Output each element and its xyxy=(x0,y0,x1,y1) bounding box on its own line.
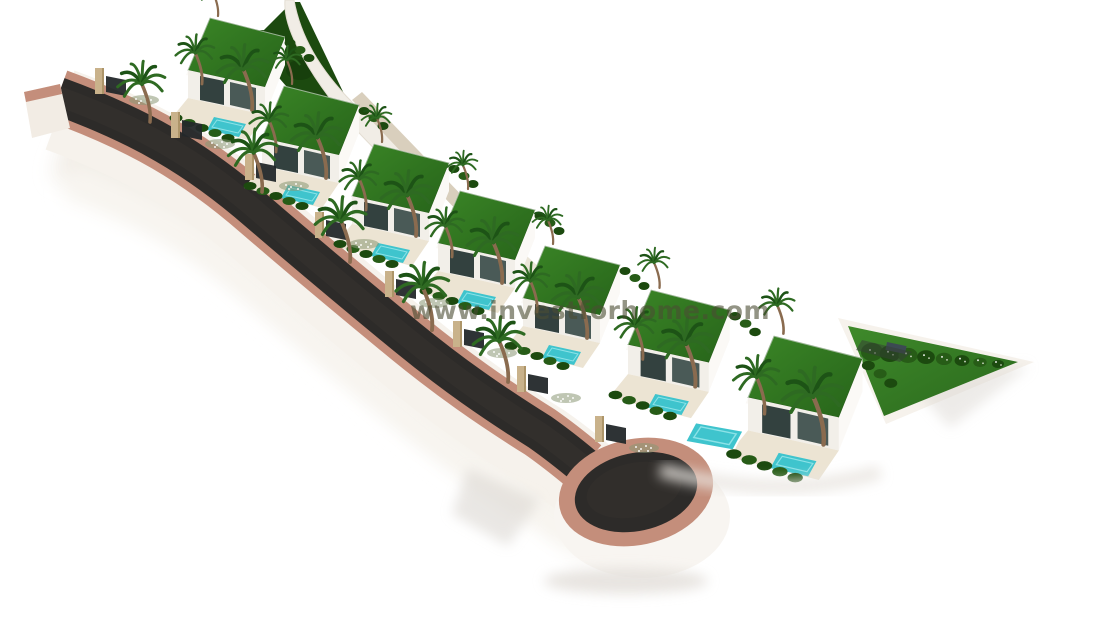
villa xyxy=(609,248,761,420)
hedge-bush xyxy=(636,401,650,409)
flower-bed xyxy=(349,239,379,249)
hedge-bush xyxy=(862,361,875,370)
flower-dot xyxy=(498,353,500,355)
hedge-bush xyxy=(936,353,952,365)
flower-dot xyxy=(964,361,966,363)
hedge-bush xyxy=(639,282,650,290)
flower-dot xyxy=(569,400,571,402)
flower-dot xyxy=(365,241,367,243)
hedge-bush xyxy=(209,129,222,137)
flower-dot xyxy=(216,144,218,146)
flower-dot xyxy=(290,186,292,188)
flower-dot xyxy=(140,100,142,102)
flower-dot xyxy=(928,357,930,359)
gate-pillar-shade xyxy=(392,271,394,297)
flower-dot xyxy=(496,355,498,357)
hedge-bush xyxy=(772,467,787,476)
flower-dot xyxy=(297,188,299,190)
flower-dot xyxy=(638,450,640,452)
flower-bed xyxy=(279,181,309,191)
flower-dot xyxy=(1000,364,1002,366)
flower-bed xyxy=(129,95,159,105)
gate-pillar-shade xyxy=(102,68,104,94)
flower-dot xyxy=(508,352,510,354)
flower-dot xyxy=(493,351,495,353)
palm-tree xyxy=(638,248,669,288)
flower-bed xyxy=(205,139,235,149)
hedge-bush xyxy=(917,350,935,364)
flower-dot xyxy=(226,143,228,145)
hedge-bush xyxy=(295,46,306,54)
flower-dot xyxy=(562,398,564,400)
hedge-bush xyxy=(334,240,347,248)
flower-dot xyxy=(923,354,925,356)
flower-dot xyxy=(211,142,213,144)
hedge-bush xyxy=(296,202,309,210)
palm-tree xyxy=(198,0,228,16)
flower-dot xyxy=(150,99,152,101)
flower-dot xyxy=(941,356,943,358)
flower-dot xyxy=(982,362,984,364)
hedge-bush xyxy=(726,449,741,458)
hedge-bush xyxy=(757,461,772,470)
flower-dot xyxy=(557,396,559,398)
palm-frond xyxy=(124,83,142,96)
flower-dot xyxy=(977,359,979,361)
gate-pillar-shade xyxy=(178,112,180,138)
flower-dot xyxy=(358,246,360,248)
hedge-bush xyxy=(884,378,897,387)
palm-trunk xyxy=(654,263,660,288)
flower-dot xyxy=(360,244,362,246)
palm-trunk xyxy=(213,0,218,16)
flower-dot xyxy=(567,395,569,397)
hedge-bush xyxy=(283,197,296,205)
hedge-bush xyxy=(386,260,399,268)
flower-dot xyxy=(355,242,357,244)
palm-trunk xyxy=(777,306,783,334)
gate-pillar-shade xyxy=(524,366,526,392)
flower-dot xyxy=(285,184,287,186)
flower-dot xyxy=(221,141,223,143)
hedge-bush xyxy=(557,362,570,370)
flower-dot xyxy=(370,243,372,245)
hedge-bush xyxy=(663,412,677,420)
hedge-bush xyxy=(609,391,623,399)
flower-dot xyxy=(560,400,562,402)
hedge-bush xyxy=(973,358,986,367)
flower-dot xyxy=(214,146,216,148)
hedge-bush xyxy=(304,54,315,62)
palm-frond xyxy=(643,262,655,271)
flower-dot xyxy=(138,102,140,104)
hedge-bush xyxy=(992,360,1004,368)
hedge-bush xyxy=(630,274,641,282)
gate-pillar-shade xyxy=(602,416,604,442)
flower-dot xyxy=(910,356,912,358)
hedge-bush xyxy=(742,455,757,464)
gate-door xyxy=(606,424,626,444)
flower-dot xyxy=(135,98,137,100)
flower-dot xyxy=(635,446,637,448)
watermark-text: www.investforhome.com xyxy=(410,296,770,325)
hedge-bush xyxy=(622,396,636,404)
flower-dot xyxy=(647,450,649,452)
flower-dot xyxy=(650,447,652,449)
flower-dot xyxy=(367,246,369,248)
villa-base-shadow xyxy=(660,470,880,487)
culdesac-ground-shadow xyxy=(544,568,708,594)
flower-dot xyxy=(946,359,948,361)
render-canvas: www.investforhome.com xyxy=(0,0,1110,626)
hedge-bush xyxy=(874,369,887,378)
flower-dot xyxy=(572,397,574,399)
hedge-bush xyxy=(270,192,283,200)
hedge-bush xyxy=(554,227,565,235)
hedge-bush xyxy=(360,250,373,258)
hedge-bush xyxy=(244,182,257,190)
hedge-bush xyxy=(955,355,970,366)
flower-bed xyxy=(629,443,659,453)
flower-dot xyxy=(300,185,302,187)
hedge-bush xyxy=(531,352,544,360)
hedge-bush xyxy=(620,267,631,275)
flower-dot xyxy=(640,448,642,450)
hedge-bush xyxy=(650,407,664,415)
flower-bed xyxy=(551,393,581,403)
flower-dot xyxy=(645,445,647,447)
flower-dot xyxy=(288,188,290,190)
flower-dot xyxy=(959,358,961,360)
hedge-bush xyxy=(373,255,386,263)
hedge-bush xyxy=(749,328,761,336)
flower-dot xyxy=(995,361,997,363)
gate-pillar-shade xyxy=(252,154,254,180)
hedge-bush xyxy=(544,357,557,365)
flower-dot xyxy=(295,183,297,185)
hedge-bush xyxy=(285,39,296,47)
flower-dot xyxy=(223,146,225,148)
